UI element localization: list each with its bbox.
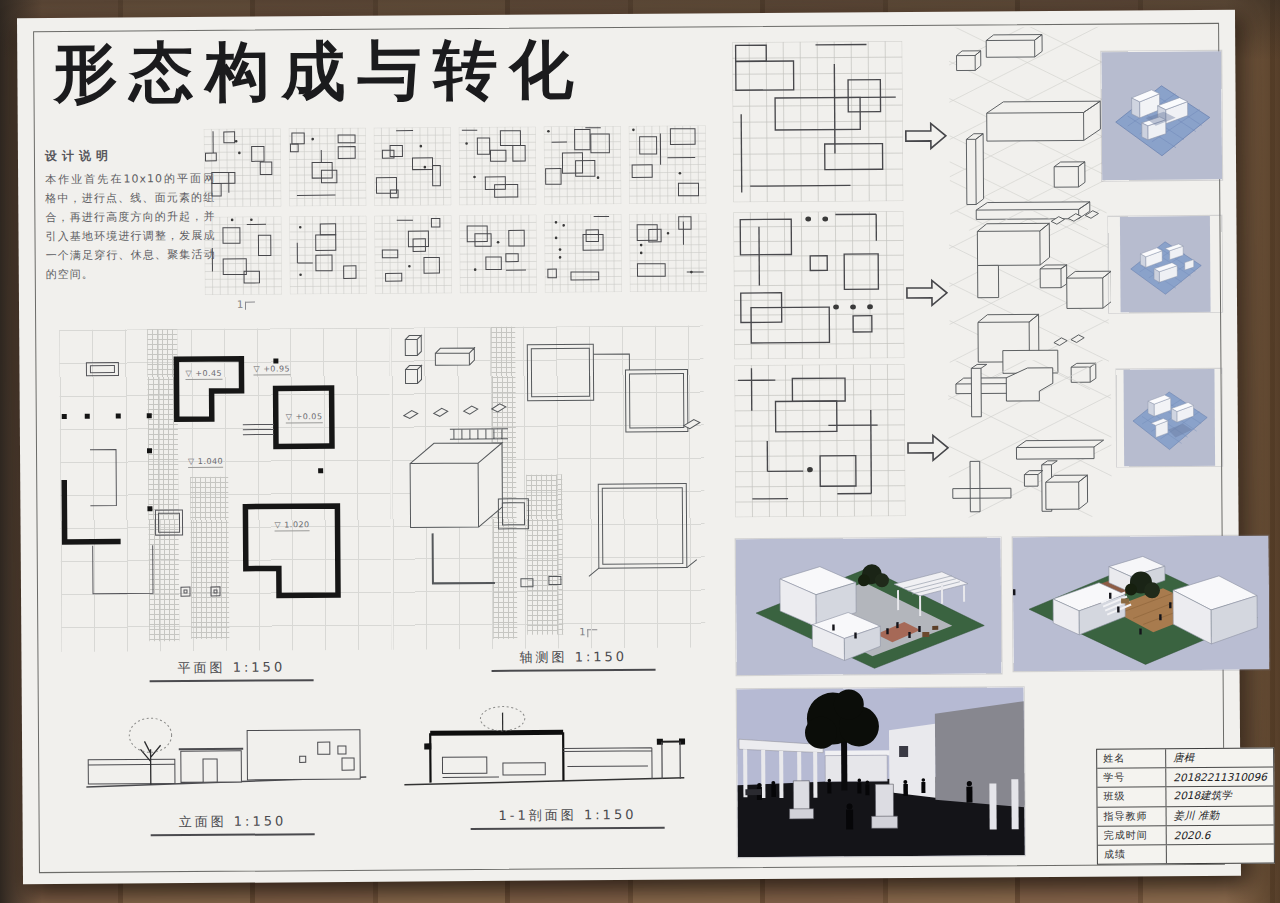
title-block-value: 2020.6 (1167, 828, 1274, 841)
massing-render-2 (1108, 216, 1222, 313)
presentation-board: 形态构成与转化 设计说明 本作业首先在10x10的平面网格中，进行点、线、面元素… (17, 10, 1241, 884)
title-block-row: 姓名唐楫 (1097, 749, 1273, 768)
title-block-value: 唐楫 (1166, 751, 1273, 766)
axon-sketch-3 (947, 360, 1112, 518)
level-annotation: ▽ +0.05 (286, 412, 323, 423)
floor-plan-label: 平面图 1:150 (149, 658, 313, 682)
title-block-row: 指导教师姜川 准勤 (1098, 805, 1274, 825)
title-block-label: 姓名 (1097, 749, 1166, 768)
floor-plan-walls (59, 328, 391, 652)
study-grid-tile (374, 127, 452, 206)
section-label: 1-1剖面图 1:150 (471, 806, 665, 830)
elevation-label: 立面图 1:150 (151, 812, 315, 836)
level-annotation: ▽ +0.95 (253, 364, 290, 375)
title-block-label: 班级 (1097, 788, 1166, 807)
massing-grid-2 (733, 211, 904, 359)
study-grid-tile (544, 214, 622, 293)
study-grid-tile (544, 126, 622, 205)
aerial-render-right (1013, 536, 1270, 672)
level-annotation: ▽ 1.040 (188, 457, 223, 468)
elevation-drawing (84, 698, 369, 800)
title-block-row: 学号20182211310096 (1097, 767, 1273, 787)
study-grid-tile (629, 125, 707, 204)
title-block-row: 完成时间2020.6 (1098, 824, 1274, 844)
design-notes: 设计说明 本作业首先在10x10的平面网格中，进行点、线、面元素的组合，再进行高… (45, 147, 216, 285)
study-grid-tile (204, 128, 282, 207)
axonometric-lines (391, 325, 705, 649)
section-cut-marker-top: 1 (237, 299, 255, 310)
study-grid-tile (289, 128, 367, 207)
design-notes-heading: 设计说明 (45, 147, 215, 165)
study-grid-tile (289, 216, 367, 295)
axon-sketch-1 (945, 27, 1110, 231)
study-grid-tile (459, 215, 537, 294)
level-annotation: ▽ 1.020 (275, 520, 310, 531)
axonometric-drawing (391, 325, 705, 649)
transform-arrow-icon-3 (906, 433, 950, 463)
study-grid-tile (459, 127, 537, 206)
axonometric-label: 轴测图 1:150 (491, 648, 655, 672)
grid-study-row-1 (204, 125, 707, 207)
section-drawing (402, 702, 687, 798)
title-block-label: 学号 (1097, 768, 1166, 787)
perspective-render (737, 687, 1025, 857)
title-block-value: 姜川 准勤 (1167, 808, 1274, 823)
aerial-render-left (736, 537, 1002, 675)
massing-grid-3 (734, 364, 905, 517)
title-block-label: 指导教师 (1098, 807, 1167, 826)
study-grid-tile (374, 215, 452, 294)
study-grid-tile (732, 41, 903, 202)
title-block-value: 20182211310096 (1166, 771, 1273, 784)
transform-arrow-icon-1 (904, 121, 948, 151)
study-grid-tile (629, 213, 707, 292)
massing-render-1 (1101, 51, 1222, 181)
title-block-row: 班级2018建筑学 (1097, 786, 1273, 806)
transform-arrow-icon-2 (905, 278, 949, 308)
title-block-value: 2018建筑学 (1166, 789, 1273, 804)
massing-render-3 (1116, 369, 1222, 467)
title-block-label: 完成时间 (1098, 826, 1167, 845)
title-block-value (1167, 853, 1274, 854)
level-annotation: ▽ +0.45 (185, 369, 222, 380)
study-grid-tile (734, 364, 905, 517)
floor-plan-drawing: ▽ +0.45▽ +0.95▽ +0.05▽ 1.040▽ 1.020 (59, 328, 391, 652)
title-block-table: 姓名唐楫学号20182211310096班级2018建筑学指导教师姜川 准勤完成… (1096, 748, 1275, 865)
title-block-label: 成绩 (1098, 845, 1167, 864)
grid-study-row-2 (204, 213, 707, 295)
title-block-row: 成绩 (1098, 843, 1274, 863)
board-title: 形态构成与转化 (53, 34, 585, 108)
study-grid-tile (733, 211, 904, 359)
study-grid-tile (204, 216, 282, 295)
design-notes-body: 本作业首先在10x10的平面网格中，进行点、线、面元素的组合，再进行高度方向的升… (45, 170, 216, 285)
massing-grid-1 (732, 41, 903, 202)
